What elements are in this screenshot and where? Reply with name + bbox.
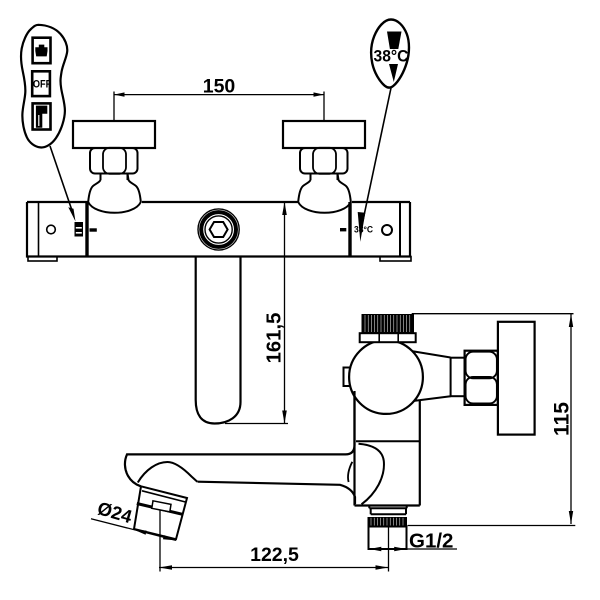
svg-text:38°C: 38°C	[354, 224, 374, 235]
svg-text:OFF: OFF	[33, 79, 51, 91]
svg-text:38°C: 38°C	[374, 47, 409, 66]
svg-text:150: 150	[203, 75, 236, 97]
svg-text:122,5: 122,5	[250, 544, 299, 566]
svg-text:115: 115	[551, 402, 574, 436]
svg-text:161,5: 161,5	[264, 313, 286, 364]
